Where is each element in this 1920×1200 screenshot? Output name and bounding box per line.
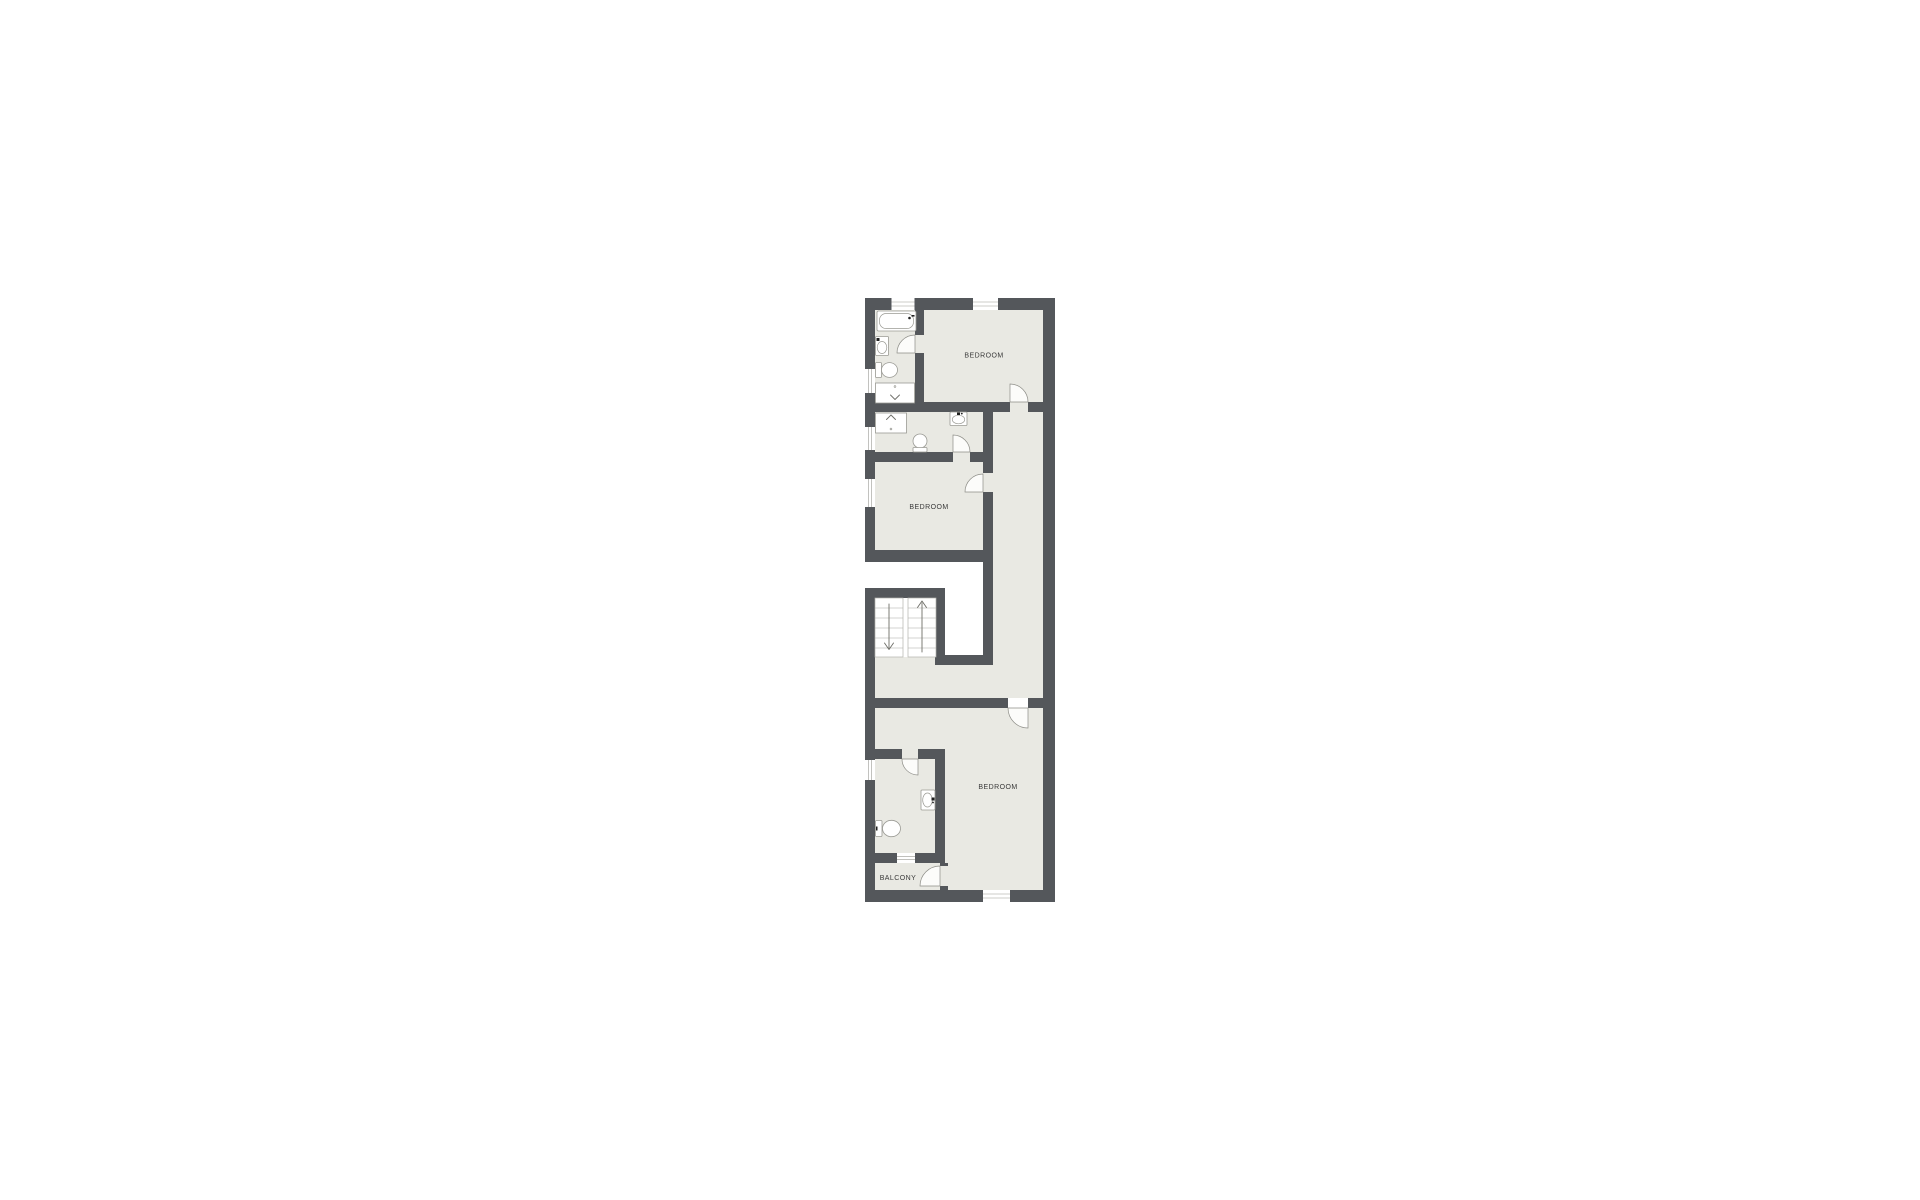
room-label-balcony: BALCONY — [880, 875, 917, 882]
bathtub-icon — [877, 311, 916, 331]
wall-landing-bottom — [865, 698, 1008, 708]
wall-bathroom-bottom-right — [935, 749, 945, 863]
room-label-bedroom-bottom: BEDROOM — [978, 784, 1017, 791]
shower-icon — [876, 383, 915, 403]
exterior-wall-right — [1043, 298, 1055, 902]
window-icon — [897, 853, 915, 863]
wall-wc-bottom-b — [970, 452, 983, 462]
wall-landing-bottom-stub — [1028, 698, 1043, 708]
sink-icon — [950, 412, 967, 426]
window-icon — [865, 369, 875, 393]
window-icon — [865, 760, 875, 780]
sink-icon — [876, 337, 889, 356]
wall-balcony-right-b — [940, 886, 948, 890]
room-label-bedroom-middle: BEDROOM — [909, 504, 948, 511]
toilet-icon — [876, 820, 901, 836]
floor-plan: BEDROOM BEDROOM BEDROOM BALCONY — [858, 292, 1062, 908]
stairs-icon — [875, 598, 936, 657]
wall-hallway-left-lower — [983, 492, 993, 665]
page-background: { "window": { "width": 1920, "height": 1… — [0, 0, 1920, 1200]
window-icon — [865, 479, 875, 507]
wall-bedroom-top-bottom-stub — [1028, 402, 1043, 412]
wall-balcony-right-a — [940, 863, 948, 866]
floor-hallway — [993, 412, 1043, 698]
wall-wc-bottom-a — [865, 452, 953, 462]
wall-stairwell-bottom — [935, 655, 993, 665]
window-icon — [983, 890, 1010, 902]
wall-stairwell-right — [935, 598, 945, 655]
wall-hallway-left-upper — [983, 412, 993, 473]
wall-bedroom-top-bottom — [865, 402, 1010, 412]
room-label-bedroom-top: BEDROOM — [964, 353, 1003, 360]
sink-icon — [921, 790, 935, 810]
wall-bathroom-top-b — [915, 353, 924, 402]
wall-stairwell-top — [865, 588, 945, 598]
wall-bathroom-bottom-top-a — [865, 749, 902, 759]
shower-icon — [876, 413, 907, 433]
window-icon — [865, 427, 875, 450]
floor-plan-canvas: BEDROOM BEDROOM BEDROOM BALCONY — [858, 292, 1062, 908]
window-icon — [973, 298, 998, 310]
exterior-wall-bottom — [865, 890, 1055, 902]
window-icon — [892, 298, 915, 310]
toilet-icon — [913, 434, 927, 452]
wall-bedroom-middle-bottom — [865, 550, 993, 562]
toilet-icon — [876, 363, 898, 378]
